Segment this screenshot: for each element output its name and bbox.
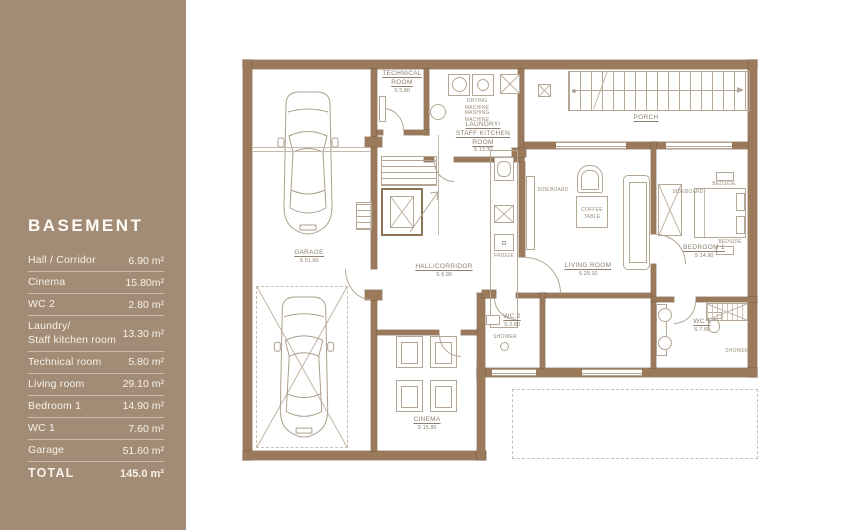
window <box>556 142 626 149</box>
room-label-garage: GARAGE S 51.60 <box>279 249 339 265</box>
sideboard <box>526 176 535 250</box>
wall-segment <box>243 60 252 460</box>
terrace-outline <box>512 389 758 459</box>
room-label-cinema: CINEMA S 15.80 <box>387 416 467 432</box>
fridge-dot <box>502 241 506 245</box>
wall-segment <box>371 69 377 269</box>
boiler <box>430 104 446 120</box>
shower-drain <box>500 342 509 351</box>
washer-drum <box>452 77 467 92</box>
room-label-wc1: WC 1 S 7.60 <box>680 318 724 334</box>
wall-segment <box>461 330 477 335</box>
room-label-hall: HALL/CORRIDOR S 6.90 <box>404 263 484 279</box>
staircase <box>381 156 437 186</box>
garage-door-line <box>252 147 371 148</box>
room-label-porch: PORCH <box>606 114 686 123</box>
door-arc <box>345 269 371 300</box>
wc1-sink <box>658 308 672 322</box>
wall-segment <box>545 293 651 298</box>
cinema-seat <box>396 380 423 412</box>
shower-label: SHOWER <box>490 334 520 341</box>
cinema-seat <box>430 380 457 412</box>
bedside-table <box>716 172 734 181</box>
wall-segment <box>477 293 485 460</box>
armchair <box>577 165 603 193</box>
garage-steps <box>356 202 372 230</box>
drain <box>538 84 551 97</box>
wall-segment <box>377 130 383 135</box>
cinema-seat <box>430 336 457 368</box>
equipment <box>379 96 386 122</box>
car-icon <box>276 88 340 238</box>
wall-pilaster <box>365 137 382 147</box>
coffee-table-label: COFFEE TABLE <box>576 207 608 220</box>
pillow <box>736 216 745 234</box>
floor-plan: GARAGE S 51.60 TECHNICAL ROOM S 5.80 DRY… <box>0 0 850 530</box>
wall-segment <box>651 264 656 297</box>
room-label-living: LIVING ROOM S 29.10 <box>548 262 628 278</box>
garage-door-line <box>252 151 371 152</box>
pillow <box>736 193 745 211</box>
sofa <box>623 175 650 270</box>
wall-segment <box>371 300 377 451</box>
wall-segment <box>243 451 486 460</box>
room-label-technical: TECHNICAL ROOM S 5.80 <box>377 70 427 95</box>
window <box>666 142 732 149</box>
door-arc <box>434 162 454 182</box>
sink-basin <box>497 161 511 177</box>
wall-segment <box>377 330 439 335</box>
stair-arrow <box>408 190 440 234</box>
fridge-label: FRIDGE <box>484 253 524 260</box>
wall-segment <box>540 293 545 368</box>
wc1-sink <box>658 336 672 350</box>
wall-segment <box>651 142 656 234</box>
dryer-drum <box>477 79 489 91</box>
window <box>492 369 536 376</box>
cinema-seat <box>396 336 423 368</box>
window <box>582 369 642 376</box>
sideboard-label: SIDEBOARD <box>536 187 570 194</box>
room-label-bedroom: BEDROOM 1 S 14.90 <box>664 244 744 260</box>
shower-label: SHOWER <box>722 348 752 355</box>
counter-unit <box>500 74 520 94</box>
stove <box>494 205 514 223</box>
bed-fold-line <box>704 189 705 237</box>
room-label-wc2: WC 2 S 2.80 <box>492 313 532 329</box>
bedside-label: BEDSIDE <box>704 181 744 188</box>
wall-segment <box>519 162 525 257</box>
wall-segment <box>404 130 429 135</box>
door-arc <box>383 108 404 130</box>
wall-segment <box>696 297 757 302</box>
car-icon <box>272 293 336 441</box>
wall-segment <box>243 60 757 69</box>
